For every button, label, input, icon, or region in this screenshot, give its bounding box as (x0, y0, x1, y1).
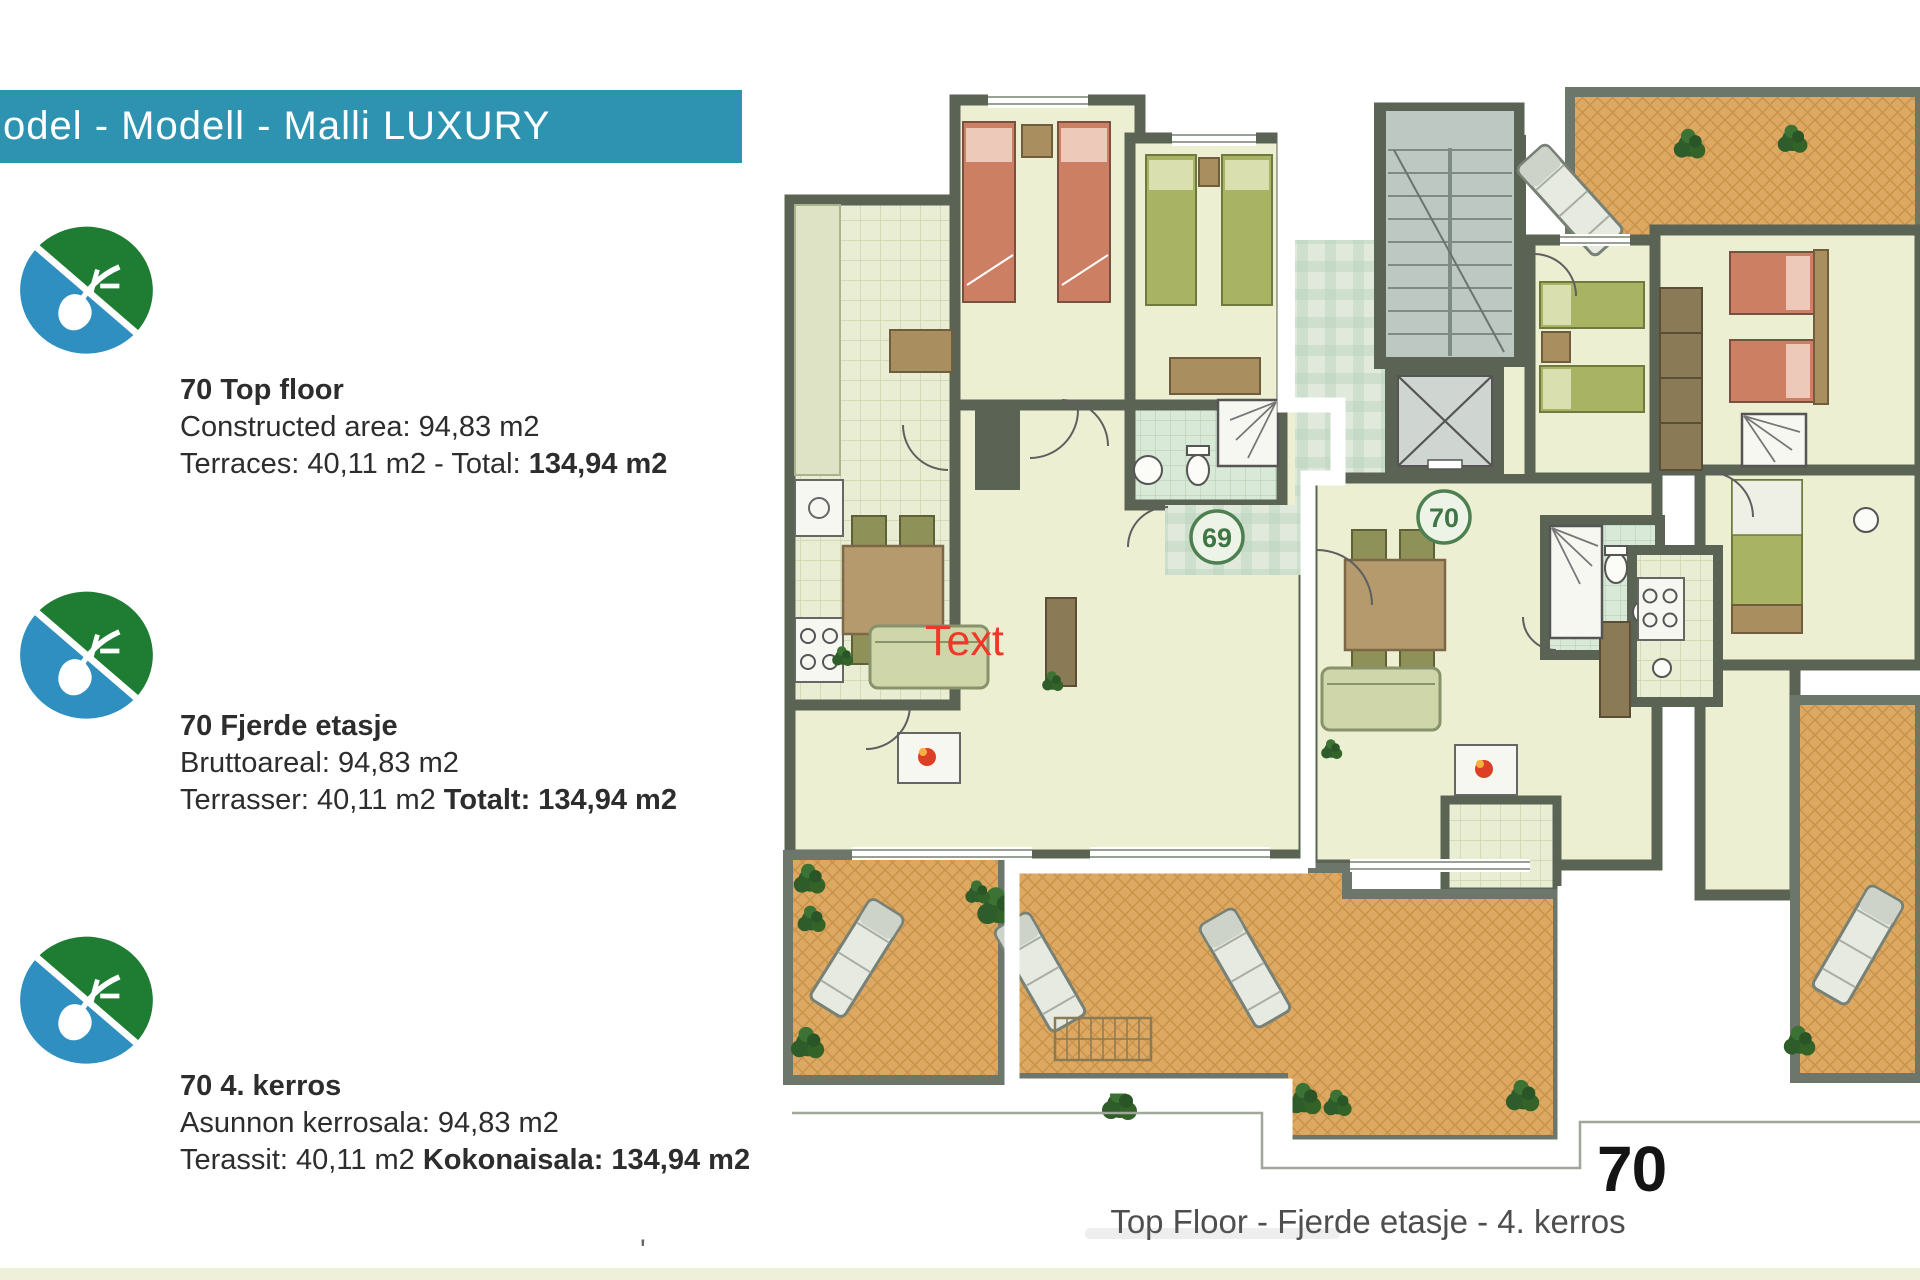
overlay-text-label: Text (925, 617, 1004, 665)
bed (1730, 340, 1814, 402)
stairwell (1380, 105, 1520, 363)
floor-plan: 69 70 Text 70 Top Floor - Fjerde etasje … (0, 0, 1920, 1280)
bed (1540, 366, 1644, 412)
sofa (1322, 668, 1440, 730)
terrace-70 (993, 868, 1558, 1140)
scan-mark: ' (640, 1234, 646, 1267)
brochure-page: odel - Modell - Malli LUXURY 70 Top floo… (0, 0, 1920, 1280)
fireplace (898, 733, 960, 783)
apartment-69 (790, 100, 1304, 855)
bed (1732, 480, 1802, 633)
fireplace (1455, 745, 1517, 795)
terrace-bottom-right (1784, 700, 1920, 1078)
terrace-69 (788, 855, 1018, 1080)
bed (1730, 252, 1814, 314)
bed (1540, 282, 1644, 328)
scan-smudge (1085, 1228, 1340, 1239)
svg-text:70: 70 (1429, 503, 1459, 533)
bed (1222, 155, 1272, 305)
bed (1058, 122, 1110, 302)
bottom-edge-strip (0, 1268, 1920, 1280)
unit-badge-70: 70 (1418, 491, 1470, 543)
bed (963, 122, 1015, 302)
svg-text:69: 69 (1202, 523, 1232, 553)
unit-number-label: 70 (1597, 1133, 1666, 1205)
bed (1146, 155, 1196, 305)
elevator (1385, 363, 1505, 478)
unit-badge-69: 69 (1191, 511, 1243, 563)
